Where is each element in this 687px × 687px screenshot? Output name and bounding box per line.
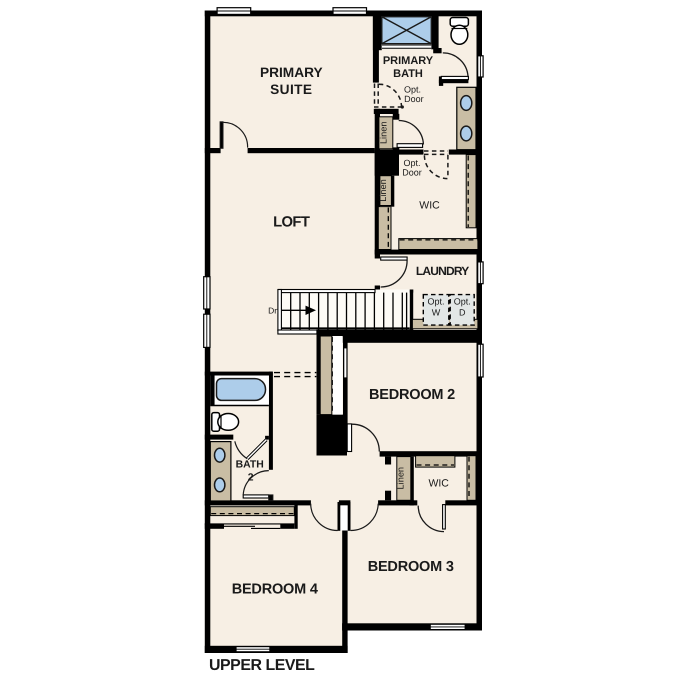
- svg-text:Linen: Linen: [378, 179, 388, 201]
- svg-text:PRIMARY: PRIMARY: [383, 55, 434, 67]
- svg-text:WIC: WIC: [419, 200, 440, 212]
- svg-text:Opt.: Opt.: [427, 297, 444, 307]
- svg-text:BATH: BATH: [393, 68, 423, 80]
- svg-text:BEDROOM 4: BEDROOM 4: [232, 581, 318, 597]
- svg-text:LAUNDRY: LAUNDRY: [416, 264, 469, 278]
- svg-text:LOFT: LOFT: [273, 214, 310, 230]
- svg-text:Door: Door: [404, 94, 424, 104]
- svg-text:Door: Door: [402, 168, 422, 178]
- svg-text:WIC: WIC: [428, 477, 449, 489]
- svg-text:BEDROOM 3: BEDROOM 3: [368, 559, 454, 575]
- svg-text:D: D: [459, 308, 466, 318]
- svg-text:BATH: BATH: [236, 459, 264, 470]
- svg-text:W: W: [432, 308, 441, 318]
- svg-text:Dn: Dn: [268, 306, 279, 316]
- svg-text:Linen: Linen: [396, 467, 406, 489]
- svg-text:UPPER LEVEL: UPPER LEVEL: [209, 657, 315, 674]
- svg-text:Opt.: Opt.: [404, 85, 421, 95]
- svg-text:Opt.: Opt.: [454, 297, 471, 307]
- svg-text:Linen: Linen: [378, 122, 388, 144]
- svg-text:SUITE: SUITE: [270, 82, 312, 97]
- svg-text:Opt.: Opt.: [403, 158, 420, 168]
- svg-text:2: 2: [248, 472, 254, 483]
- svg-text:BEDROOM 2: BEDROOM 2: [369, 387, 455, 403]
- svg-text:PRIMARY: PRIMARY: [260, 65, 323, 80]
